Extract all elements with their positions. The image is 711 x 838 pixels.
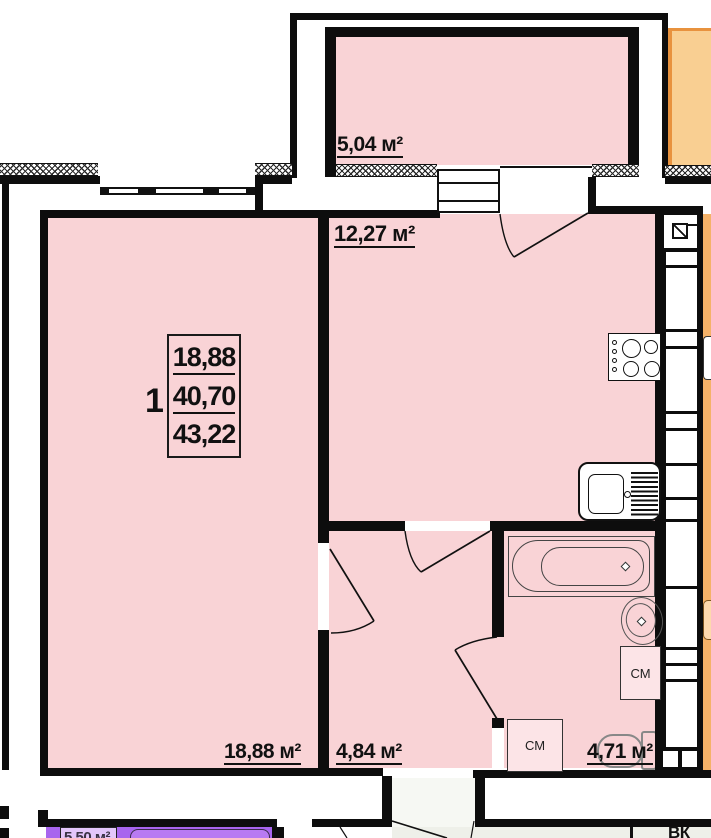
apartment-info-box: 18,88 40,70 43,22: [167, 334, 241, 458]
wall-outer-top-left: [290, 13, 297, 178]
wall-facade-right: [255, 176, 292, 184]
bathtub: [508, 536, 655, 597]
floor-plan: СМ СМ 18,88 40,70 43,22 1 5,04 м² 12,27 …: [0, 0, 711, 838]
wall-balcony-left: [325, 27, 336, 177]
vent-chamber-label: ВК: [668, 823, 690, 838]
window-glass-line: [100, 193, 255, 195]
bathroom-area-label: 4,71 м²: [587, 740, 653, 764]
neighbor-fixture-hint: [703, 600, 711, 640]
wall-hatch-balcony-left: [336, 164, 437, 177]
sink-drainer: [631, 472, 658, 516]
wall-purple-stub: [38, 810, 48, 827]
living-room-area-label: 18,88 м²: [224, 740, 301, 764]
wall-apartment-bottom-left: [40, 768, 383, 776]
shaft-box: [666, 349, 697, 411]
window-mullion: [138, 187, 156, 195]
wall-neighbor-facade: [665, 177, 711, 184]
stove-knob: [612, 367, 617, 372]
lower-apartment-area-label: 5,50 м²: [64, 829, 110, 838]
wall-bathroom-left: [492, 531, 504, 637]
window-frame-line: [439, 200, 498, 202]
lower-apartment-label-box: 5,50 м²: [60, 827, 117, 838]
shaft-box: [666, 466, 697, 497]
balcony-area-label: 5,04 м²: [337, 133, 403, 157]
shaft-box: [666, 589, 697, 647]
stove-knob: [612, 349, 617, 354]
neighbor-apartment-strip: [703, 214, 711, 770]
shaft-box: [663, 751, 678, 767]
shaft-box: [666, 252, 697, 265]
info-area: 40,70: [173, 381, 236, 414]
shaft-box: [666, 522, 697, 586]
wall-lower-apartment-right: [272, 827, 284, 838]
living-room-floor: [48, 218, 318, 768]
wall-hall-top-a: [329, 521, 405, 531]
stove-burner: [623, 361, 639, 377]
shaft-box: [666, 650, 697, 663]
shaft-box: [666, 666, 697, 679]
wall-outer-top: [290, 13, 668, 20]
hallway-area-label: 4,84 м²: [336, 740, 402, 764]
washing-machine-2: СМ: [507, 719, 563, 772]
shaft-box: [682, 751, 697, 767]
wall-stub-left-a: [0, 806, 9, 819]
balcony-threshold-line: [500, 166, 592, 168]
wall-balcony-door-jamb: [588, 177, 596, 214]
neighbor-fixture-hint: [703, 336, 711, 380]
wall-apartment-left: [40, 210, 48, 776]
wall-partition-living-upper: [318, 218, 329, 543]
window-mullion: [100, 187, 109, 195]
corridor-wall-line: [630, 827, 633, 838]
stove-knob: [612, 358, 617, 363]
sink-faucet: [624, 491, 631, 498]
window-glass-line: [100, 187, 255, 189]
wall-lower-left: [38, 819, 277, 827]
shaft-box: [666, 414, 697, 428]
wall-hatch-facade-left: [0, 163, 98, 176]
wall-living-top: [40, 210, 440, 218]
wall-lower-mid: [312, 819, 392, 827]
stove: [608, 333, 661, 381]
wall-vestibule-stub-right: [475, 776, 485, 821]
kitchen-area-label: 12,27 м²: [334, 221, 415, 247]
shaft-box: [666, 500, 697, 519]
washing-machine-label: СМ: [525, 738, 545, 753]
wall-balcony-right: [628, 27, 639, 177]
wall-hatch-neighbor: [665, 165, 711, 177]
wall-bathroom-left-stub: [492, 718, 504, 728]
neighbor-balcony-accent: [668, 28, 672, 165]
info-total-area: 43,22: [173, 419, 236, 450]
hallway-floor: [329, 531, 492, 768]
wall-facade-left: [0, 176, 100, 184]
bathroom-door-floor: [492, 637, 504, 718]
wall-stub-left-b: [0, 828, 9, 838]
stove-knob: [612, 340, 617, 345]
window-mullion: [203, 187, 219, 195]
lower-apartment-furniture: [130, 829, 270, 838]
corridor-floor: [392, 827, 711, 838]
wall-vestibule-stub-left: [382, 776, 392, 821]
shaft-box: [666, 431, 697, 463]
wall-balcony-top: [325, 27, 639, 37]
vent-symbol-tail: [688, 224, 698, 226]
shaft-box: [666, 268, 697, 329]
shaft-box: [666, 682, 697, 747]
info-rooms-count: 1: [145, 382, 163, 421]
stove-burner: [644, 340, 658, 354]
balcony-window: [437, 169, 500, 213]
sink-bowl: [588, 474, 624, 514]
neighbor-balcony-accent-top: [668, 28, 711, 31]
neighbor-balcony-floor: [672, 31, 711, 165]
window-mullion: [246, 187, 255, 195]
stove-burner: [622, 339, 641, 358]
wall-outer-thin-left: [2, 184, 9, 770]
info-living-area: 18,88: [173, 342, 236, 375]
wall-hatch-facade-right: [255, 163, 292, 176]
vent-symbol-icon: [672, 223, 688, 239]
stove-burner: [644, 361, 660, 377]
kitchen-sink-unit: [578, 462, 661, 521]
wall-partition-living-lower: [318, 630, 329, 768]
washing-machine-1: СМ: [620, 646, 661, 700]
window-frame-line: [439, 182, 498, 184]
shaft-box: [666, 332, 697, 346]
washing-machine-label: СМ: [630, 666, 650, 681]
wall-hall-top-b: [490, 521, 662, 531]
wall-hatch-balcony-right: [592, 164, 639, 177]
